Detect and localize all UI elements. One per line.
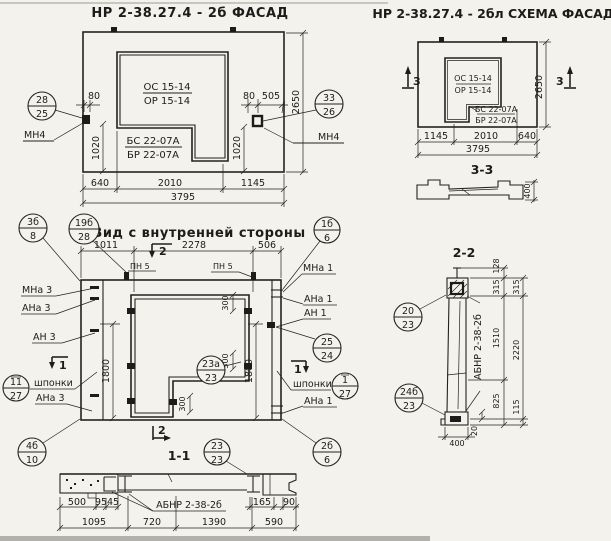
- label-mna1: МНа 1: [283, 263, 336, 292]
- dim: 640: [91, 178, 109, 189]
- abnr-label-1-1: АБНР 2-38-2б: [112, 492, 226, 511]
- dim: 3795: [466, 144, 490, 155]
- svg-text:10: 10: [26, 455, 38, 466]
- dim: 400: [449, 439, 464, 448]
- svg-text:МН4: МН4: [24, 130, 45, 141]
- dim: 165: [253, 497, 271, 508]
- svg-text:28: 28: [78, 232, 90, 243]
- svg-text:20: 20: [402, 306, 414, 317]
- svg-text:ПН 5: ПН 5: [213, 262, 233, 271]
- pn5-left: ПН 5: [128, 262, 156, 271]
- svg-text:6: 6: [324, 455, 330, 466]
- dim: 300: [221, 295, 230, 310]
- callout-4b-10: 4б 10: [18, 419, 80, 466]
- facade-view: НР 2-38.27.4 - 2б ФАСАД ОС 15-14 ОР 15-1…: [23, 6, 344, 207]
- dim: 115: [512, 399, 521, 414]
- dim: 315: [512, 279, 521, 294]
- svg-text:шпонки: шпонки: [34, 378, 73, 389]
- scheme-title: НР 2-38.27.4 - 2бл СХЕМА ФАСАДА: [372, 6, 611, 21]
- svg-text:11: 11: [10, 377, 22, 388]
- svg-text:1: 1: [342, 375, 348, 386]
- section-1-1-title: 1-1: [168, 448, 191, 463]
- svg-text:3: 3: [413, 75, 421, 88]
- dim: 1800: [101, 359, 112, 383]
- dim: 45: [107, 497, 119, 508]
- callout-keys-left-11-27: 11 27: [3, 375, 29, 402]
- section-3-3: 3-3 400: [417, 162, 538, 203]
- svg-text:19б: 19б: [75, 218, 93, 229]
- lifting-loop-icon: [111, 27, 117, 32]
- svg-text:3: 3: [556, 75, 564, 88]
- dim: 640: [518, 131, 536, 142]
- svg-text:АБНР 2-38-2б: АБНР 2-38-2б: [156, 500, 222, 511]
- svg-text:25: 25: [321, 337, 333, 348]
- dim: 1020: [232, 136, 243, 160]
- svg-text:3б: 3б: [27, 217, 39, 228]
- sill-mark2: БР 22-07А: [475, 116, 517, 125]
- svg-text:27: 27: [10, 391, 22, 402]
- dim: 1095: [82, 517, 106, 528]
- dim: 95: [95, 497, 107, 508]
- svg-text:АБНР 2-38-2б: АБНР 2-38-2б: [473, 314, 484, 380]
- svg-text:25: 25: [36, 109, 48, 120]
- svg-text:2б: 2б: [321, 441, 333, 452]
- panel-drawing: НР 2-38.27.4 - 2б ФАСАД ОС 15-14 ОР 15-1…: [0, 0, 611, 541]
- callout-keys-right-1-27: 1 27: [332, 373, 358, 400]
- callout-24b-23: 24б 23: [395, 384, 445, 415]
- dim: 720: [143, 517, 161, 528]
- callout-25-24: 25 24: [276, 327, 341, 362]
- dim: 2220: [512, 340, 521, 360]
- dim: 2650: [534, 75, 545, 99]
- sill-mark: БС 22-07А: [475, 105, 518, 114]
- drawing-sheet: НР 2-38.27.4 - 2б ФАСАД ОС 15-14 ОР 15-1…: [0, 0, 611, 541]
- sill-mark: БС 22-07А: [127, 136, 180, 147]
- inner-view-title: Вид с внутренней стороны: [92, 226, 305, 241]
- svg-text:АНа 3: АНа 3: [36, 393, 65, 404]
- window-mark2: ОР 15-14: [455, 86, 492, 95]
- inner-view: Вид с внутренней стороны: [3, 214, 358, 466]
- svg-text:ПН 5: ПН 5: [130, 262, 150, 271]
- svg-text:8: 8: [30, 231, 36, 242]
- pn5-right: ПН 5: [211, 262, 252, 277]
- svg-text:АНа 1: АНа 1: [304, 396, 333, 407]
- dim: 1145: [424, 131, 448, 142]
- dim: 80: [88, 91, 100, 102]
- callout-23-23: 23 23: [204, 439, 247, 474]
- svg-text:23: 23: [403, 401, 415, 412]
- section-3-3-title: 3-3: [471, 162, 494, 177]
- dim: 90: [283, 497, 295, 508]
- lifting-loop-icon: [502, 37, 507, 42]
- svg-text:24: 24: [321, 351, 333, 362]
- dim: 2650: [291, 90, 302, 114]
- svg-text:33: 33: [323, 93, 335, 104]
- dim: 2010: [158, 178, 182, 189]
- dim: 2278: [182, 240, 206, 251]
- svg-text:27: 27: [339, 389, 351, 400]
- label-ana1-top: АНа 1: [283, 294, 337, 305]
- dim: 2010: [474, 131, 498, 142]
- svg-text:МНа 3: МНа 3: [22, 285, 52, 296]
- svg-text:6: 6: [324, 233, 330, 244]
- svg-text:МНа 1: МНа 1: [303, 263, 333, 274]
- abnr-label-2-2: АБНР 2-38-2б: [466, 296, 484, 411]
- anchor-label-mn4-left: МН4: [23, 123, 83, 141]
- anchor-plate-icon: [82, 115, 90, 124]
- scheme-view: НР 2-38.27.4 - 2бл СХЕМА ФАСАДА ОС 15-14…: [372, 6, 611, 158]
- section-marker-1-right: 1: [291, 361, 309, 376]
- dim: 1145: [241, 178, 265, 189]
- facade-title: НР 2-38.27.4 - 2б ФАСАД: [91, 6, 288, 21]
- dim: 80: [243, 91, 255, 102]
- dim: 500: [68, 497, 86, 508]
- svg-text:24б: 24б: [400, 387, 418, 398]
- window-mark2: ОР 15-14: [144, 96, 190, 107]
- lifting-loop-icon: [439, 37, 444, 42]
- window-mark: ОС 15-14: [454, 74, 492, 83]
- svg-text:23: 23: [211, 441, 223, 452]
- section-2-2-title: 2-2: [453, 245, 476, 260]
- dim: 1390: [202, 517, 226, 528]
- svg-text:2: 2: [158, 424, 166, 437]
- dim: 825: [492, 393, 501, 408]
- dim: 400: [523, 183, 532, 198]
- section-marker-2-bottom: 2: [153, 424, 171, 441]
- section-marker-3-right: 3: [556, 66, 576, 88]
- svg-text:28: 28: [36, 95, 48, 106]
- label-keys-right: шпонки: [277, 371, 332, 390]
- dim: 3795: [171, 192, 195, 203]
- callout-20-23: 20 23: [394, 295, 446, 331]
- section-2-2-profile: [441, 268, 468, 425]
- dim: 590: [265, 517, 283, 528]
- sill-mark2: БР 22-07А: [127, 150, 179, 161]
- dim: 1800: [244, 359, 255, 383]
- svg-text:4б: 4б: [26, 441, 38, 452]
- dim: 300: [178, 396, 187, 411]
- dim: 506: [258, 240, 276, 251]
- section-2-2: 2-2: [394, 245, 528, 448]
- svg-text:1б: 1б: [321, 219, 333, 230]
- svg-text:АНа 1: АНа 1: [304, 294, 333, 305]
- lifting-loop-icon: [230, 27, 236, 32]
- svg-text:23: 23: [211, 455, 223, 466]
- svg-text:1: 1: [294, 363, 302, 376]
- svg-text:МН4: МН4: [318, 132, 339, 143]
- dim: 315: [492, 279, 501, 294]
- svg-text:АН 3: АН 3: [33, 332, 56, 343]
- dim: 1510: [492, 328, 501, 348]
- section-1-1: 1-1 23 23 АБНР 2-38-2б: [57, 439, 299, 531]
- callout-2b-6: 2б 6: [282, 419, 341, 466]
- dim: 1020: [91, 136, 102, 160]
- label-an1: АН 1: [276, 308, 331, 327]
- dim: 128: [492, 258, 501, 273]
- svg-text:26: 26: [323, 107, 335, 118]
- callout-28-25: 28 25: [28, 92, 82, 120]
- svg-text:23: 23: [402, 320, 414, 331]
- svg-text:АН 1: АН 1: [304, 308, 327, 319]
- section-marker-1-left: 1: [49, 357, 68, 372]
- dim: 20: [470, 426, 479, 436]
- svg-text:АНа 3: АНа 3: [22, 303, 51, 314]
- label-ana1-bottom: АНа 1: [283, 396, 337, 413]
- svg-text:1: 1: [59, 359, 67, 372]
- section-1-1-profile: [60, 474, 296, 498]
- svg-text:шпонки: шпонки: [293, 379, 332, 390]
- svg-text:23а: 23а: [202, 359, 220, 370]
- window-mark: ОС 15-14: [143, 82, 190, 93]
- dim: 505: [262, 91, 280, 102]
- svg-text:2: 2: [159, 245, 167, 258]
- svg-text:23: 23: [205, 373, 217, 384]
